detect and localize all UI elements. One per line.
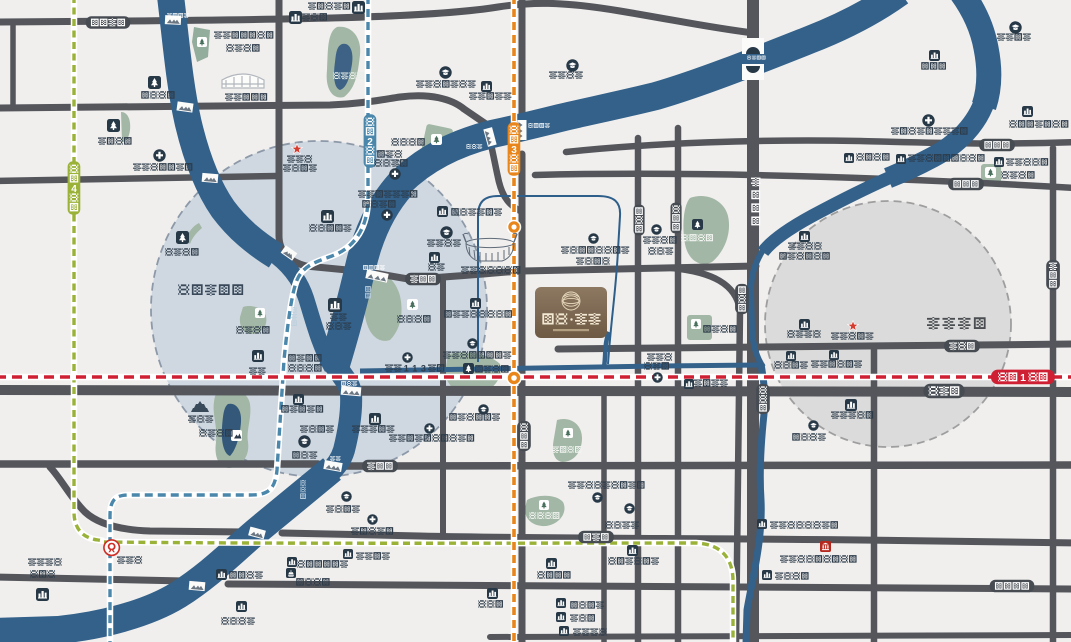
- svg-text:2: 2: [367, 137, 373, 148]
- svg-text:1: 1: [1020, 372, 1026, 384]
- svg-text:1: 1: [404, 363, 409, 373]
- svg-text:1: 1: [412, 363, 417, 373]
- svg-text:3: 3: [421, 363, 426, 373]
- svg-text:4: 4: [71, 184, 77, 195]
- svg-text:3: 3: [511, 145, 517, 156]
